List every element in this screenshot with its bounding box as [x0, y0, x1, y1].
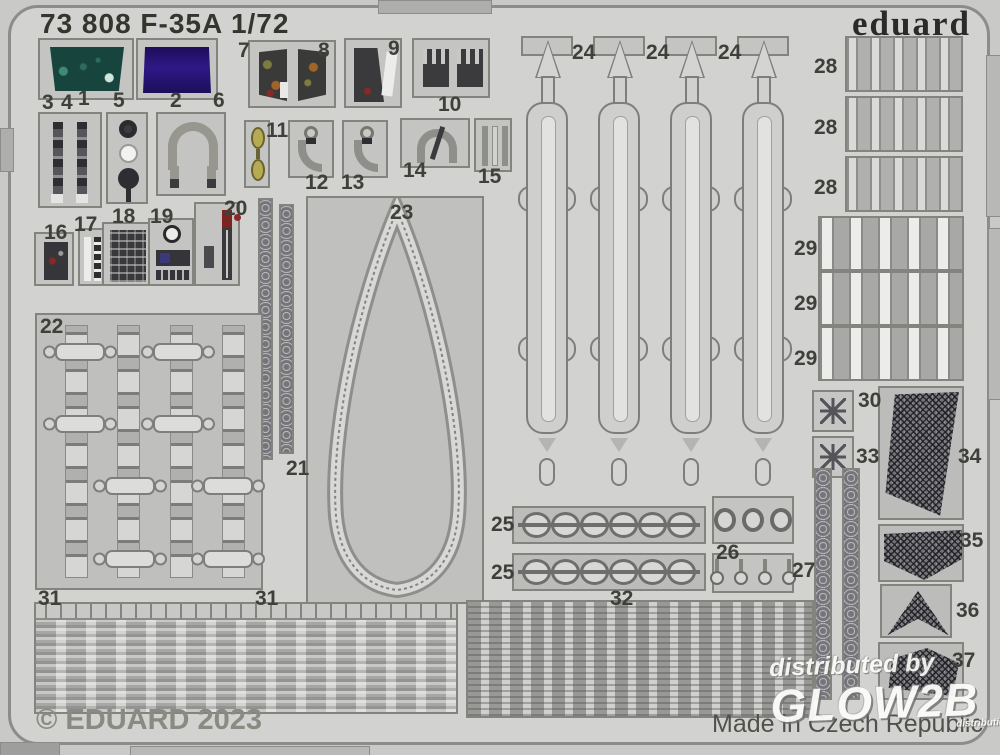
part-30-square — [812, 390, 854, 432]
part-13-plate — [342, 120, 388, 178]
ladder-strip — [222, 325, 245, 578]
pylon-slot — [685, 116, 700, 422]
bar — [502, 126, 508, 166]
part-29-label: 29 — [794, 348, 817, 369]
canopy-strip-print — [222, 210, 232, 280]
ladder-strip — [170, 325, 193, 578]
part-32-label: 32 — [610, 588, 633, 609]
part-12-plate — [288, 120, 334, 178]
part-13-label: 13 — [341, 172, 364, 193]
part-25-label: 25 — [491, 514, 514, 535]
part-6-plate — [156, 112, 226, 196]
pylon-end — [539, 458, 555, 486]
part-21-strip — [279, 204, 294, 454]
part-19-label: 19 — [150, 206, 173, 227]
part-29-label: 29 — [794, 293, 817, 314]
hinge-bar — [203, 477, 253, 495]
part-9-label: 9 — [388, 38, 400, 59]
part-26-label: 26 — [716, 542, 739, 563]
ring-row — [714, 508, 792, 532]
ladder-strip — [65, 325, 88, 578]
button-panel-print — [110, 230, 146, 282]
buckle-loop — [251, 159, 265, 181]
part-8-label: 8 — [318, 40, 330, 61]
seatbelt-strap — [53, 122, 63, 194]
pylon-end — [683, 458, 699, 486]
part-31-label: 31 — [255, 588, 278, 609]
part-11-label: 11 — [266, 120, 288, 141]
part-27-label: 27 — [792, 560, 815, 581]
screen-print — [160, 253, 170, 263]
ring — [770, 508, 792, 532]
hinge-bar — [203, 550, 253, 568]
mesh-grille — [885, 589, 951, 637]
part-32-band — [466, 600, 814, 718]
ring — [714, 508, 736, 532]
part-15-label: 15 — [478, 166, 501, 187]
part-29-row — [818, 326, 964, 381]
pylon-body — [598, 102, 640, 434]
part-1-label: 1 — [78, 88, 90, 109]
hinge-bar — [153, 343, 203, 361]
seatbelt-strap — [77, 122, 87, 194]
part-25-label: 25 — [491, 562, 514, 583]
dark-block — [204, 246, 214, 268]
part-5-label: 5 — [113, 90, 125, 111]
bay-door-outline — [308, 198, 486, 606]
stripe-dashed — [94, 237, 101, 281]
part-17-plate — [78, 228, 104, 286]
eyelet-row — [514, 555, 704, 589]
pylon-end — [611, 458, 627, 486]
panel-print — [156, 270, 190, 280]
stem-bar — [787, 559, 791, 571]
band-header — [36, 604, 456, 620]
buckle-waist — [256, 149, 260, 159]
ring — [742, 508, 764, 532]
part-17-label: 17 — [74, 214, 97, 235]
hinge-bar — [105, 550, 155, 568]
part-34-plate — [878, 386, 964, 520]
part-30-label: 30 — [858, 390, 881, 411]
part-22-plate — [35, 313, 263, 590]
part-18-plate — [102, 222, 150, 286]
buckle-loop — [251, 127, 265, 149]
part-19-plate — [148, 218, 194, 286]
stripe-white — [84, 237, 91, 281]
part-21-label: 21 — [286, 458, 309, 479]
part-22-label: 22 — [40, 316, 63, 337]
eduard-logo: eduard — [852, 4, 971, 44]
frame-strip-right-lower — [988, 228, 1000, 400]
part-24-label: 24 — [572, 42, 595, 63]
panel-print — [354, 48, 384, 102]
part-33-label: 33 — [856, 446, 879, 467]
part-24-label: 24 — [718, 42, 741, 63]
belt-hook — [76, 194, 88, 203]
part-24-pylon — [518, 36, 576, 508]
comb-teeth — [457, 49, 483, 64]
hose-curve — [298, 140, 322, 172]
eyelet-row — [514, 508, 704, 542]
eyelet — [667, 512, 696, 538]
frame-tab-left — [0, 128, 14, 172]
part-24-pylon — [590, 36, 648, 508]
pylon-body — [742, 102, 784, 434]
console-cutout — [280, 82, 288, 98]
pylon-fin — [610, 438, 628, 452]
pylon-slot — [613, 116, 628, 422]
part-35-label: 35 — [960, 530, 983, 551]
part-24-label: 24 — [646, 42, 669, 63]
part-29-row — [818, 271, 964, 326]
part-28-row — [845, 36, 963, 92]
display-screen-print — [143, 47, 211, 93]
stem — [758, 559, 772, 585]
disc-dark-ring — [119, 120, 137, 138]
part-10-label: 10 — [438, 94, 461, 115]
part-6-label: 6 — [213, 90, 225, 111]
strap-leg — [207, 166, 216, 188]
frame-tab-bottom-left — [0, 742, 60, 755]
hinge-bar — [153, 415, 203, 433]
part-28-row — [845, 96, 963, 152]
pylon-fin — [682, 438, 700, 452]
part-36-label: 36 — [956, 600, 979, 621]
part-20-label: 20 — [224, 198, 247, 219]
part-24-pylon — [734, 36, 792, 508]
part-18-label: 18 — [112, 206, 135, 227]
comb-teeth — [423, 49, 449, 64]
part-25-strip — [512, 553, 706, 591]
part-34-label: 34 — [958, 446, 981, 467]
pylon-end — [755, 458, 771, 486]
ladder-strip — [117, 325, 140, 578]
hinge-bar — [55, 343, 105, 361]
part-12-label: 12 — [305, 172, 328, 193]
part-25-strip — [512, 506, 706, 544]
part-29-row — [818, 216, 964, 271]
hinge-bar — [55, 415, 105, 433]
part-23-label: 23 — [390, 202, 413, 223]
stem-bar — [739, 559, 743, 571]
frame-tab-top — [378, 0, 492, 14]
part-28-row — [845, 156, 963, 212]
part-10-plate — [412, 38, 490, 98]
part-26-plate — [712, 496, 794, 544]
bar — [492, 126, 498, 166]
belt-hook — [51, 194, 63, 203]
pylon-body — [670, 102, 712, 434]
part-31-label: 31 — [38, 588, 61, 609]
disc-white — [119, 144, 138, 163]
part-23-plate — [306, 196, 484, 604]
stem-bar — [763, 559, 767, 571]
pylon-body — [526, 102, 568, 434]
bar — [482, 126, 488, 166]
mesh-grille — [884, 392, 962, 518]
part-24-pylon — [662, 36, 720, 508]
part-3-label: 3 — [42, 92, 54, 113]
panel-print — [44, 242, 68, 280]
handle-stem — [126, 186, 131, 202]
part-7-label: 7 — [238, 40, 250, 61]
mesh-grille — [884, 530, 962, 580]
distributor-watermark: distributed by GLOW2B distribution — [769, 646, 1000, 736]
frame-tab-bottom — [130, 746, 370, 755]
part-2-label: 2 — [170, 90, 182, 111]
part-3-4-plate — [38, 112, 102, 208]
hinge-bar — [105, 477, 155, 495]
part-4-label: 4 — [61, 92, 73, 113]
part-36-plate — [880, 584, 952, 638]
panel-print — [156, 250, 190, 266]
strap-leg — [170, 166, 179, 188]
part-28-label: 28 — [814, 177, 837, 198]
part-5-plate — [106, 112, 148, 204]
part-28-label: 28 — [814, 117, 837, 138]
part-14-label: 14 — [403, 160, 426, 181]
stem-ball — [758, 571, 772, 585]
stem-ball — [710, 571, 724, 585]
part-35-plate — [878, 524, 964, 582]
horseshoe-strap — [168, 122, 218, 170]
frame-strip-right-upper — [986, 55, 1000, 217]
instrument-panel-print — [50, 47, 124, 91]
hose-curve — [354, 140, 378, 172]
part-29-label: 29 — [794, 238, 817, 259]
pylon-fin — [538, 438, 556, 452]
stem-ball — [734, 571, 748, 585]
part-15-plate — [474, 118, 512, 172]
part-16-label: 16 — [44, 222, 67, 243]
eyelet — [667, 559, 696, 585]
part-28-label: 28 — [814, 56, 837, 77]
pylon-fin — [754, 438, 772, 452]
sheet-title: 73 808 F-35A 1/72 — [40, 8, 289, 40]
comb-print — [457, 49, 483, 87]
pylon-slot — [541, 116, 556, 422]
pylon-slot — [757, 116, 772, 422]
photo-etch-fret-photo: 73 808 F-35A 1/72 eduard 3 4 1 5 2 6 7 8 — [0, 0, 1000, 755]
light-line — [226, 230, 228, 278]
copyright-text: © EDUARD 2023 — [36, 704, 262, 737]
part-31-band — [34, 602, 458, 714]
comb-print — [423, 49, 449, 87]
